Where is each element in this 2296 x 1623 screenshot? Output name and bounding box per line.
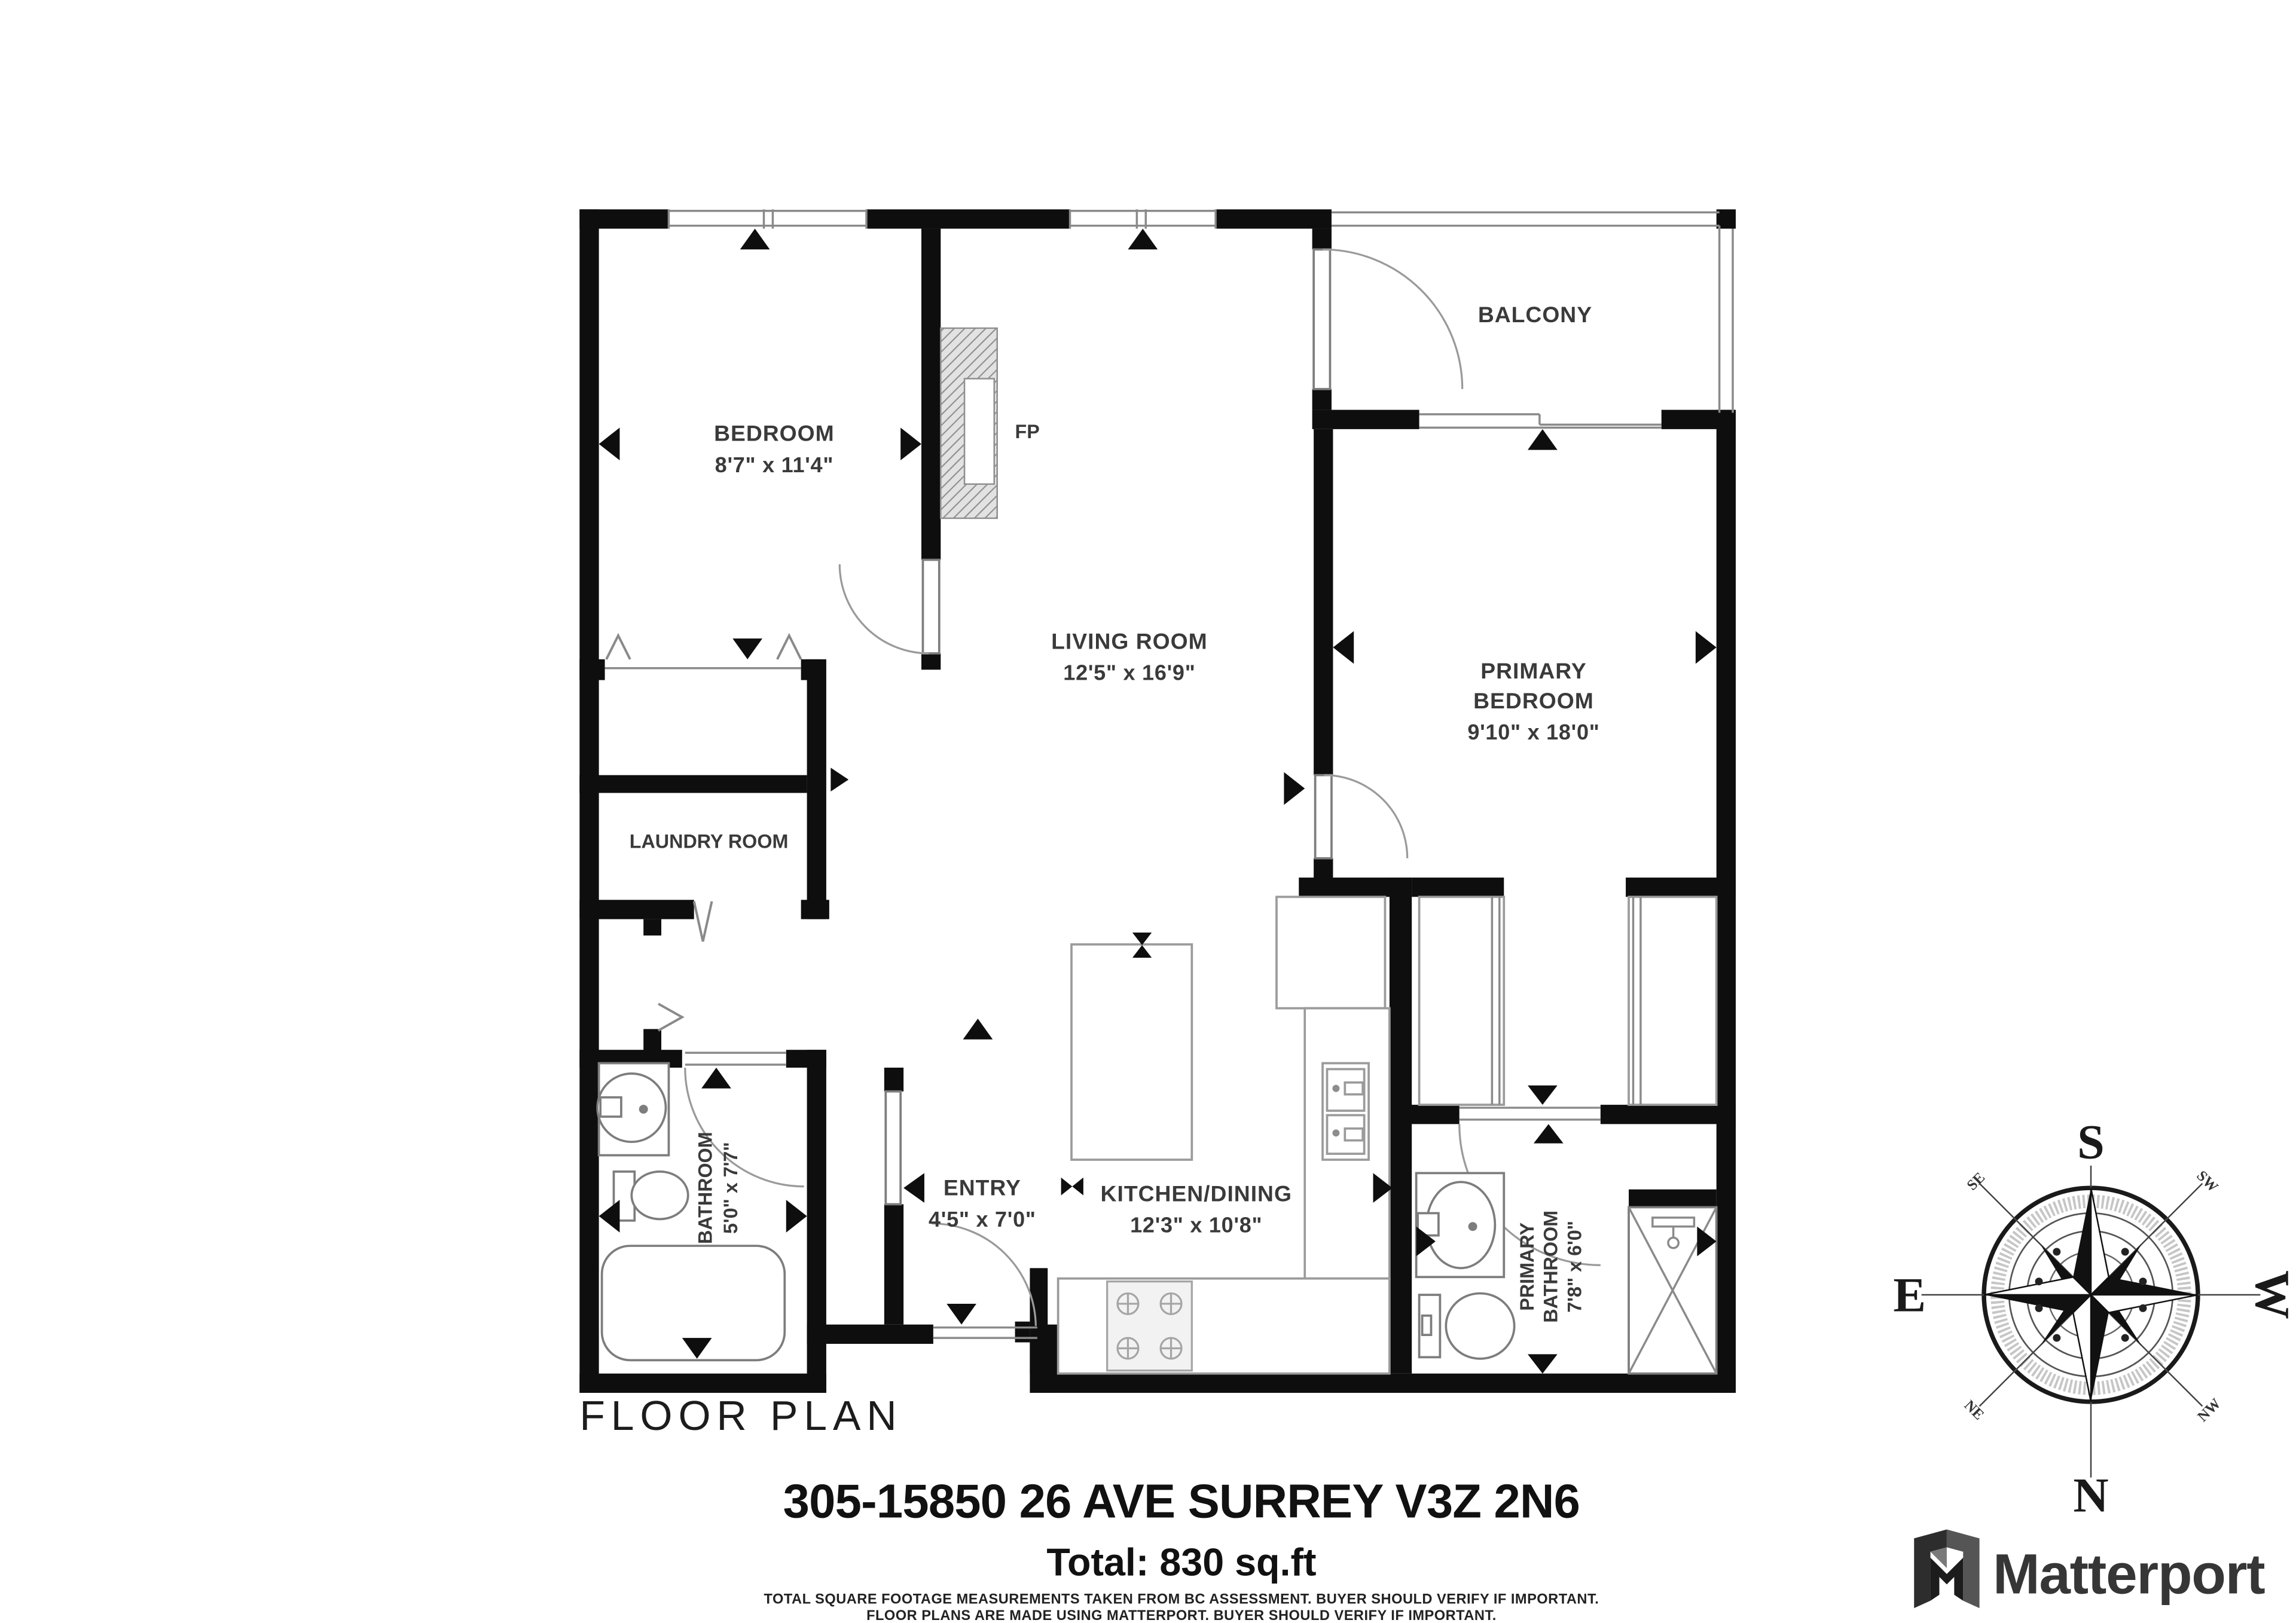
marker-laundry-icon — [831, 768, 848, 791]
total-area: Total: 830 sq.ft — [1046, 1541, 1316, 1584]
floor-plan-canvas: BEDROOM 8'7" x 11'4" LIVING ROOM 12'5" x… — [0, 0, 2296, 1623]
entry-label: ENTRY — [944, 1175, 1021, 1200]
primary-sink-icon — [1416, 1173, 1504, 1277]
kitchen-label: KITCHEN/DINING — [1101, 1181, 1292, 1206]
compass-northeast-label: NE — [1961, 1397, 1987, 1423]
room-living: LIVING ROOM 12'5" x 16'9" — [1051, 629, 1208, 685]
kitchen-fixtures — [1058, 897, 1390, 1373]
living-window-icon — [1070, 209, 1216, 228]
marker-primary-door-icon — [1284, 772, 1305, 805]
compass-rose-icon: S N E W SE SW NE NW — [1893, 1115, 2296, 1523]
entry-door-icon — [932, 1224, 1036, 1326]
matterport-branding: Matterport — [1914, 1530, 2265, 1609]
marker-bedroom-window-icon — [740, 229, 770, 250]
compass-southwest-label: SW — [2193, 1167, 2221, 1196]
disclaimer-line-2: FLOOR PLANS ARE MADE USING MATTERPORT. B… — [866, 1608, 1497, 1623]
bedroom-label: BEDROOM — [714, 421, 835, 446]
room-kitchen: KITCHEN/DINING 12'3" x 10'8" — [1101, 1181, 1292, 1237]
bathroom-sink-icon — [597, 1063, 668, 1156]
primary-bathroom-label-1: PRIMARY — [1516, 1222, 1538, 1311]
marker-entry-door-icon — [947, 1304, 976, 1325]
compass-southeast-label: SE — [1964, 1169, 1989, 1194]
matterport-logo-icon — [1914, 1530, 1979, 1609]
fireplace-icon — [941, 328, 997, 518]
bathroom-label: BATHROOM — [695, 1132, 716, 1244]
compass-west-label: W — [2245, 1270, 2296, 1319]
primary-bedroom-label-1: PRIMARY — [1480, 658, 1586, 683]
bedroom-door-icon — [839, 560, 939, 653]
marker-suite-hall-down-icon — [1528, 1086, 1558, 1105]
room-primary-bathroom: PRIMARY BATHROOM 7'8" x 6'0" — [1516, 1211, 1586, 1323]
bedroom-closet-doors-icon — [605, 635, 801, 668]
windows — [668, 209, 1733, 1338]
primary-bedroom-door-icon — [1315, 775, 1407, 858]
room-bedroom: BEDROOM 8'7" x 11'4" — [714, 421, 835, 477]
marker-entry-top-icon — [963, 1019, 993, 1040]
bowtie-kitchen-icon — [1061, 1178, 1083, 1196]
marker-balcony-window-icon — [1528, 429, 1558, 450]
marker-primary-bath-bottom-icon — [1528, 1354, 1558, 1373]
primary-bedroom-label-2: BEDROOM — [1473, 688, 1594, 713]
stove-icon — [1107, 1282, 1192, 1371]
marker-primary-left-icon — [1333, 631, 1354, 664]
compass-north-label: N — [2073, 1468, 2108, 1523]
property-address: 305-15850 26 AVE SURREY V3Z 2N6 — [783, 1475, 1580, 1528]
marker-bathroom-door-icon — [701, 1068, 731, 1089]
kitchen-dims: 12'3" x 10'8" — [1130, 1213, 1262, 1237]
living-room-label: LIVING ROOM — [1051, 629, 1208, 654]
marker-bedroom-closet-icon — [732, 638, 762, 659]
primary-bedroom-dims: 9'10" x 18'0" — [1467, 720, 1599, 744]
bedroom-dims: 8'7" x 11'4" — [715, 453, 833, 477]
primary-bathroom-dims: 7'8" x 6'0" — [1564, 1221, 1585, 1313]
kitchen-sink-icon — [1323, 1063, 1369, 1160]
marker-bedroom-divider-icon — [900, 427, 921, 460]
balcony-door-icon — [1314, 249, 1463, 389]
living-room-dims: 12'5" x 16'9" — [1063, 661, 1195, 685]
fridge-icon — [1277, 897, 1385, 1008]
compass-northwest-label: NW — [2194, 1395, 2224, 1425]
primary-closet-right — [1629, 897, 1717, 1105]
marker-living-window-icon — [1128, 229, 1158, 250]
primary-bathroom-label-2: BATHROOM — [1540, 1211, 1562, 1323]
fireplace-label: FP — [1015, 421, 1040, 442]
compass-east-label: E — [1893, 1267, 1926, 1322]
disclaimer-line-1: TOTAL SQUARE FOOTAGE MEASUREMENTS TAKEN … — [764, 1592, 1599, 1607]
marker-primary-right-icon — [1696, 631, 1717, 664]
primary-toilet-icon — [1419, 1294, 1515, 1359]
marker-suite-hall-up-icon — [1534, 1124, 1564, 1143]
entry-closet-door-icon — [886, 1092, 900, 1205]
balcony-label: BALCONY — [1478, 302, 1592, 327]
page-title: FLOOR PLAN — [579, 1392, 902, 1439]
bedroom-window-icon — [668, 209, 866, 228]
marker-entry-closet-icon — [903, 1173, 924, 1203]
laundry-room-label: LAUNDRY ROOM — [630, 830, 789, 852]
toilet-icon — [613, 1172, 688, 1221]
marker-bedroom-left-icon — [599, 427, 620, 460]
matterport-wordmark: Matterport — [1993, 1543, 2265, 1606]
entry-dims: 4'5" x 7'0" — [929, 1207, 1036, 1231]
laundry-door-icon — [658, 901, 712, 1031]
room-entry: ENTRY 4'5" x 7'0" — [929, 1175, 1036, 1231]
marker-bathroom-right-icon — [786, 1200, 807, 1233]
floor-plan-page: BEDROOM 8'7" x 11'4" LIVING ROOM 12'5" x… — [0, 0, 2296, 1623]
bathroom-dims: 5'0" x 7'7" — [720, 1142, 741, 1234]
kitchen-island — [1071, 945, 1192, 1160]
marker-bathroom-left-icon — [599, 1200, 620, 1233]
room-primary-bedroom: PRIMARY BEDROOM 9'10" x 18'0" — [1467, 658, 1599, 744]
primary-balcony-window-icon — [1419, 414, 1662, 427]
bathroom-fixtures — [597, 1063, 784, 1361]
compass-south-label: S — [2077, 1115, 2105, 1169]
